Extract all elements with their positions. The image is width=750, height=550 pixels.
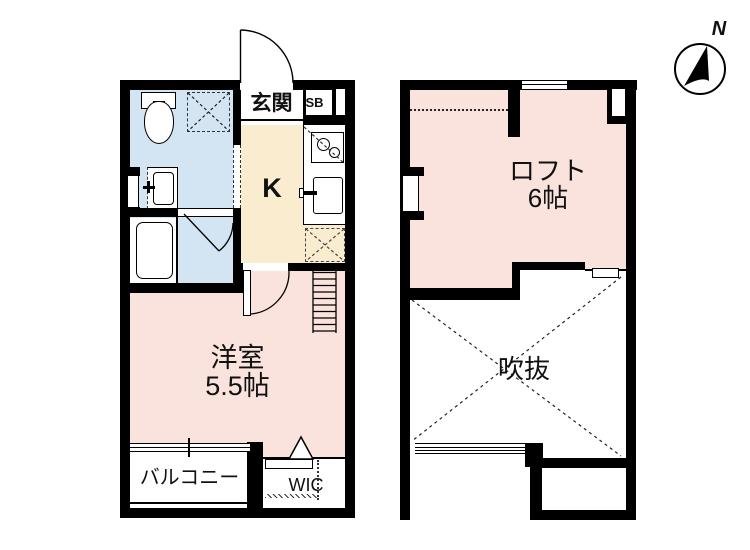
toilet-icon — [144, 101, 174, 144]
faucet-icon — [147, 181, 150, 193]
shoebox-label: SB — [305, 88, 324, 118]
entrance-label: 玄関 — [240, 90, 303, 119]
stove-burner-icon — [329, 147, 340, 158]
entrance-step-line — [240, 119, 303, 121]
wic-label: WIC — [276, 472, 336, 498]
wall — [120, 208, 178, 217]
bathroom-floor — [178, 217, 233, 283]
plan-linework — [0, 0, 750, 550]
wall — [530, 510, 636, 520]
loft-label: ロフト 6帖 — [478, 156, 618, 214]
loft-railing-line — [410, 109, 508, 111]
window-icon — [335, 88, 346, 116]
bath-threshold — [178, 208, 233, 217]
window-icon — [415, 443, 525, 454]
wall — [120, 80, 130, 518]
wall — [345, 80, 355, 518]
wall — [400, 80, 410, 520]
north-arrow-icon — [675, 44, 725, 94]
floorplan-page: 玄関 SB K 洋室 5.5帖 バルコニー WIC ロフト 6帖 吹抜 N — [0, 0, 750, 550]
void-label: 吹抜 — [472, 354, 576, 386]
wall — [233, 263, 243, 293]
room-name: 洋室 — [211, 344, 265, 372]
window-icon — [522, 80, 567, 90]
bath-partition-line — [176, 217, 178, 283]
window-icon — [127, 175, 139, 208]
stove-burner-icon — [317, 138, 330, 151]
bathtub-icon — [136, 222, 173, 279]
faucet-icon — [302, 191, 317, 195]
wall — [542, 458, 636, 468]
window-icon — [611, 88, 626, 117]
loft-name: ロフト — [509, 158, 587, 185]
wall — [512, 262, 585, 270]
wall — [525, 443, 543, 467]
wic-shelf — [265, 459, 313, 469]
window-icon — [402, 175, 419, 212]
sink-icon — [313, 177, 343, 214]
wall — [120, 508, 355, 518]
balcony-label: バルコニー — [131, 464, 248, 492]
loft-floor — [410, 262, 512, 288]
room-size: 5.5帖 — [205, 372, 270, 400]
fridge-space-icon — [305, 228, 345, 262]
wall-pier — [130, 207, 140, 216]
washer-space-icon — [187, 92, 230, 132]
loft-ladder-landing — [592, 268, 619, 278]
room-door-leaf — [243, 270, 251, 316]
compass-north-label: N — [706, 16, 732, 42]
wall-pier — [400, 211, 424, 220]
balcony-window-icon — [130, 443, 250, 452]
wall — [288, 263, 345, 271]
balcony-edge-line — [130, 502, 247, 504]
washbasin-icon — [153, 172, 174, 205]
wall — [626, 80, 636, 520]
loft-size: 6帖 — [528, 185, 568, 212]
window-center-tick — [188, 438, 190, 457]
western-room-label: 洋室 5.5帖 — [165, 336, 310, 408]
wall — [508, 90, 520, 137]
wall — [120, 283, 241, 293]
kitchen-label: K — [241, 170, 303, 206]
wall — [400, 80, 522, 90]
washroom-sliding-door — [233, 145, 241, 208]
wall — [410, 288, 520, 300]
wall — [120, 80, 240, 90]
entrance-door-arc-icon — [241, 30, 294, 83]
